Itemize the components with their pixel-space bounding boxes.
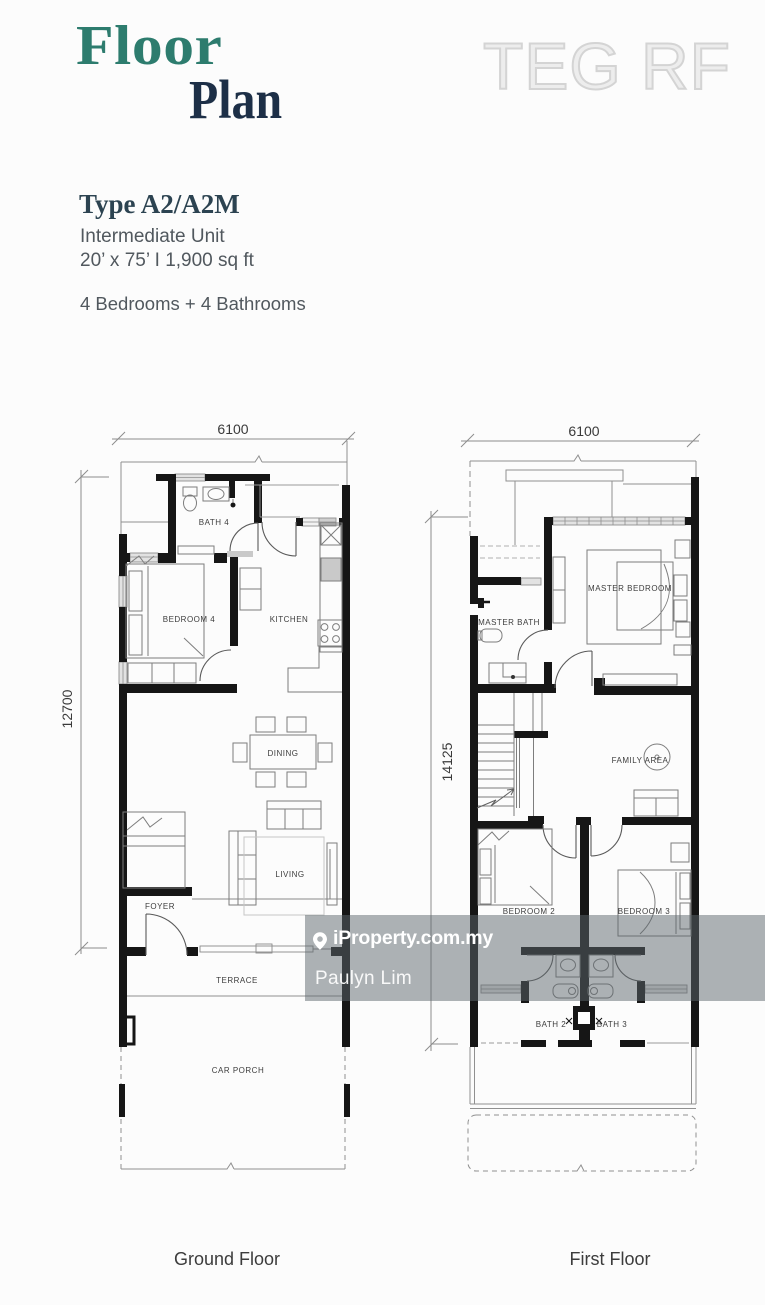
svg-text:DINING: DINING: [268, 749, 299, 758]
svg-text:TERRACE: TERRACE: [216, 976, 258, 985]
svg-text:LIVING: LIVING: [275, 870, 304, 879]
svg-text:KITCHEN: KITCHEN: [270, 615, 309, 624]
svg-text:6100: 6100: [217, 421, 248, 437]
svg-text:12700: 12700: [59, 689, 75, 728]
svg-text:6100: 6100: [568, 423, 599, 439]
svg-text:CAR PORCH: CAR PORCH: [212, 1066, 265, 1075]
svg-text:MASTER BATH: MASTER BATH: [478, 618, 540, 627]
svg-text:BATH 2: BATH 2: [536, 1020, 566, 1029]
svg-text:MASTER BEDROOM: MASTER BEDROOM: [588, 584, 672, 593]
svg-text:FAMILY AREA: FAMILY AREA: [612, 756, 669, 765]
svg-text:BATH 4: BATH 4: [199, 518, 229, 527]
svg-text:BEDROOM 4: BEDROOM 4: [163, 615, 216, 624]
svg-text:BATH 3: BATH 3: [597, 1020, 627, 1029]
svg-text:14125: 14125: [439, 742, 455, 781]
svg-text:FOYER: FOYER: [145, 902, 175, 911]
